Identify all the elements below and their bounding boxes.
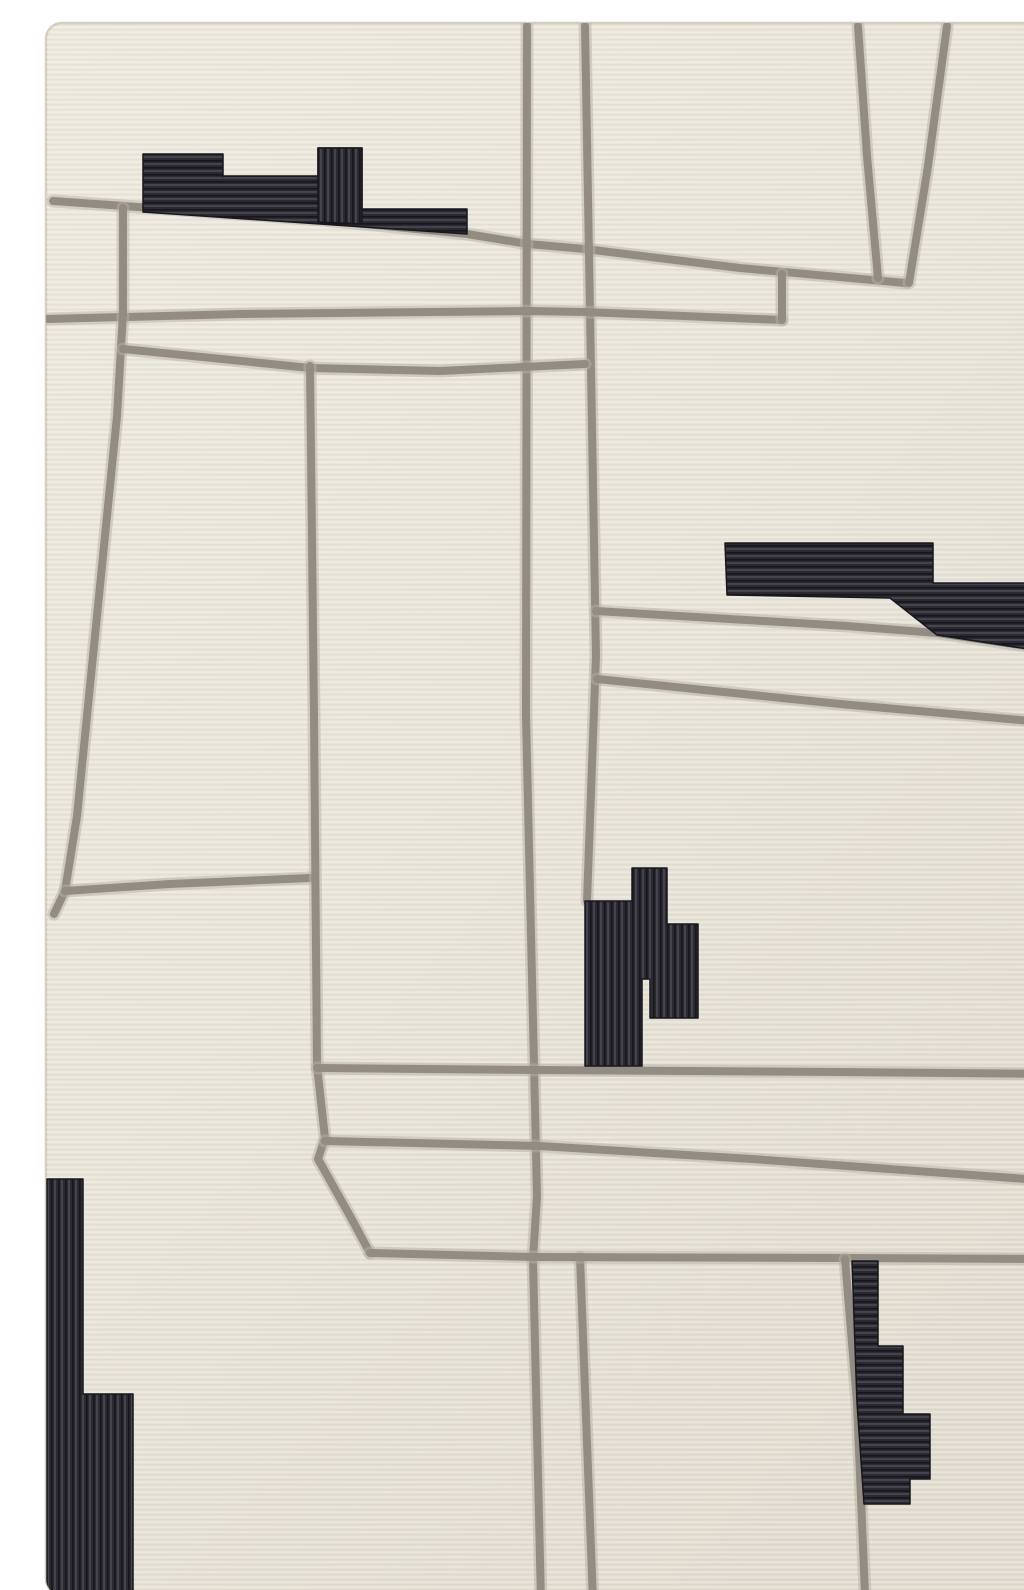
rug-product-photo	[40, 16, 1024, 1590]
top-left-vertical-block	[318, 148, 362, 224]
rug-canvas	[40, 16, 1024, 1590]
